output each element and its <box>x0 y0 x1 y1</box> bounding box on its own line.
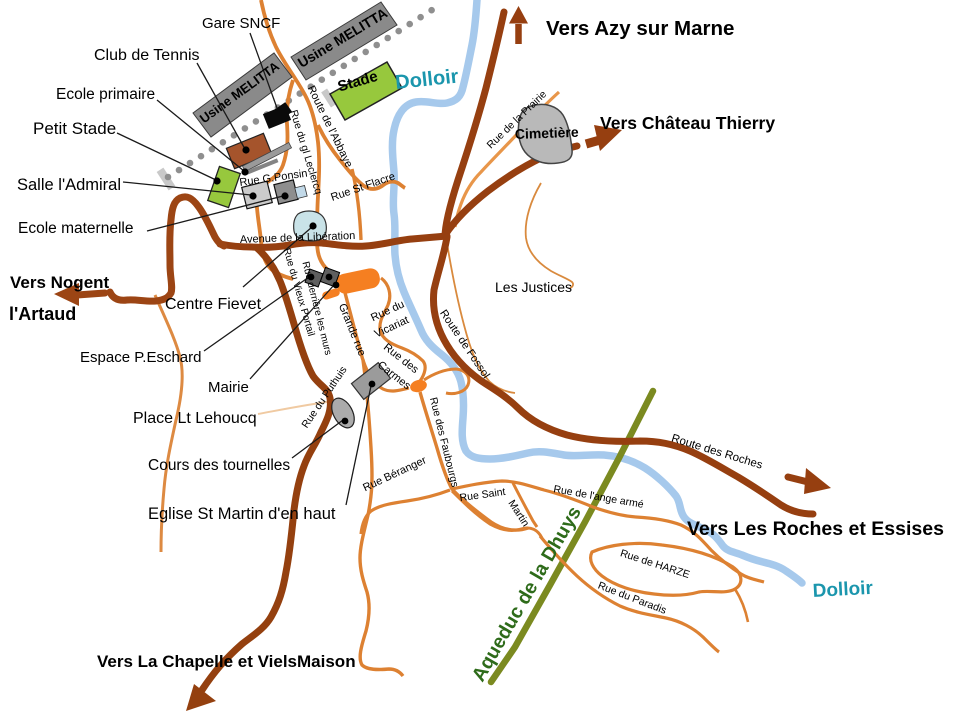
svg-text:Ecole primaire: Ecole primaire <box>56 86 155 103</box>
svg-text:Dolloir: Dolloir <box>812 578 874 602</box>
svg-text:Place Lt Lehoucq: Place Lt Lehoucq <box>133 410 257 427</box>
svg-text:l'Artaud: l'Artaud <box>9 304 76 324</box>
svg-text:Cimetière: Cimetière <box>515 124 580 142</box>
svg-text:Club de Tennis: Club de Tennis <box>94 47 200 64</box>
svg-text:Vers Les Roches et Essises: Vers Les Roches et Essises <box>687 518 944 540</box>
svg-text:Ecole maternelle: Ecole maternelle <box>18 220 133 237</box>
svg-text:Vers Château Thierry: Vers Château Thierry <box>600 113 775 133</box>
svg-text:Eglise St Martin d'en haut: Eglise St Martin d'en haut <box>148 505 336 523</box>
svg-text:Salle l'Admiral: Salle l'Admiral <box>17 176 121 194</box>
svg-text:Les Justices: Les Justices <box>495 279 572 295</box>
svg-text:Vers Azy sur Marne: Vers Azy sur Marne <box>546 17 734 40</box>
svg-text:Espace P.Eschard: Espace P.Eschard <box>80 349 201 366</box>
svg-text:Centre Fievet: Centre Fievet <box>165 296 262 313</box>
svg-text:Petit Stade: Petit Stade <box>33 119 116 138</box>
svg-text:Vers Nogent: Vers Nogent <box>10 273 110 292</box>
svg-text:Vers La Chapelle et VielsMaiso: Vers La Chapelle et VielsMaison <box>97 652 356 671</box>
svg-text:Gare SNCF: Gare SNCF <box>202 15 280 32</box>
svg-text:Cours des tournelles: Cours des tournelles <box>148 457 290 474</box>
svg-text:Mairie: Mairie <box>208 379 249 396</box>
